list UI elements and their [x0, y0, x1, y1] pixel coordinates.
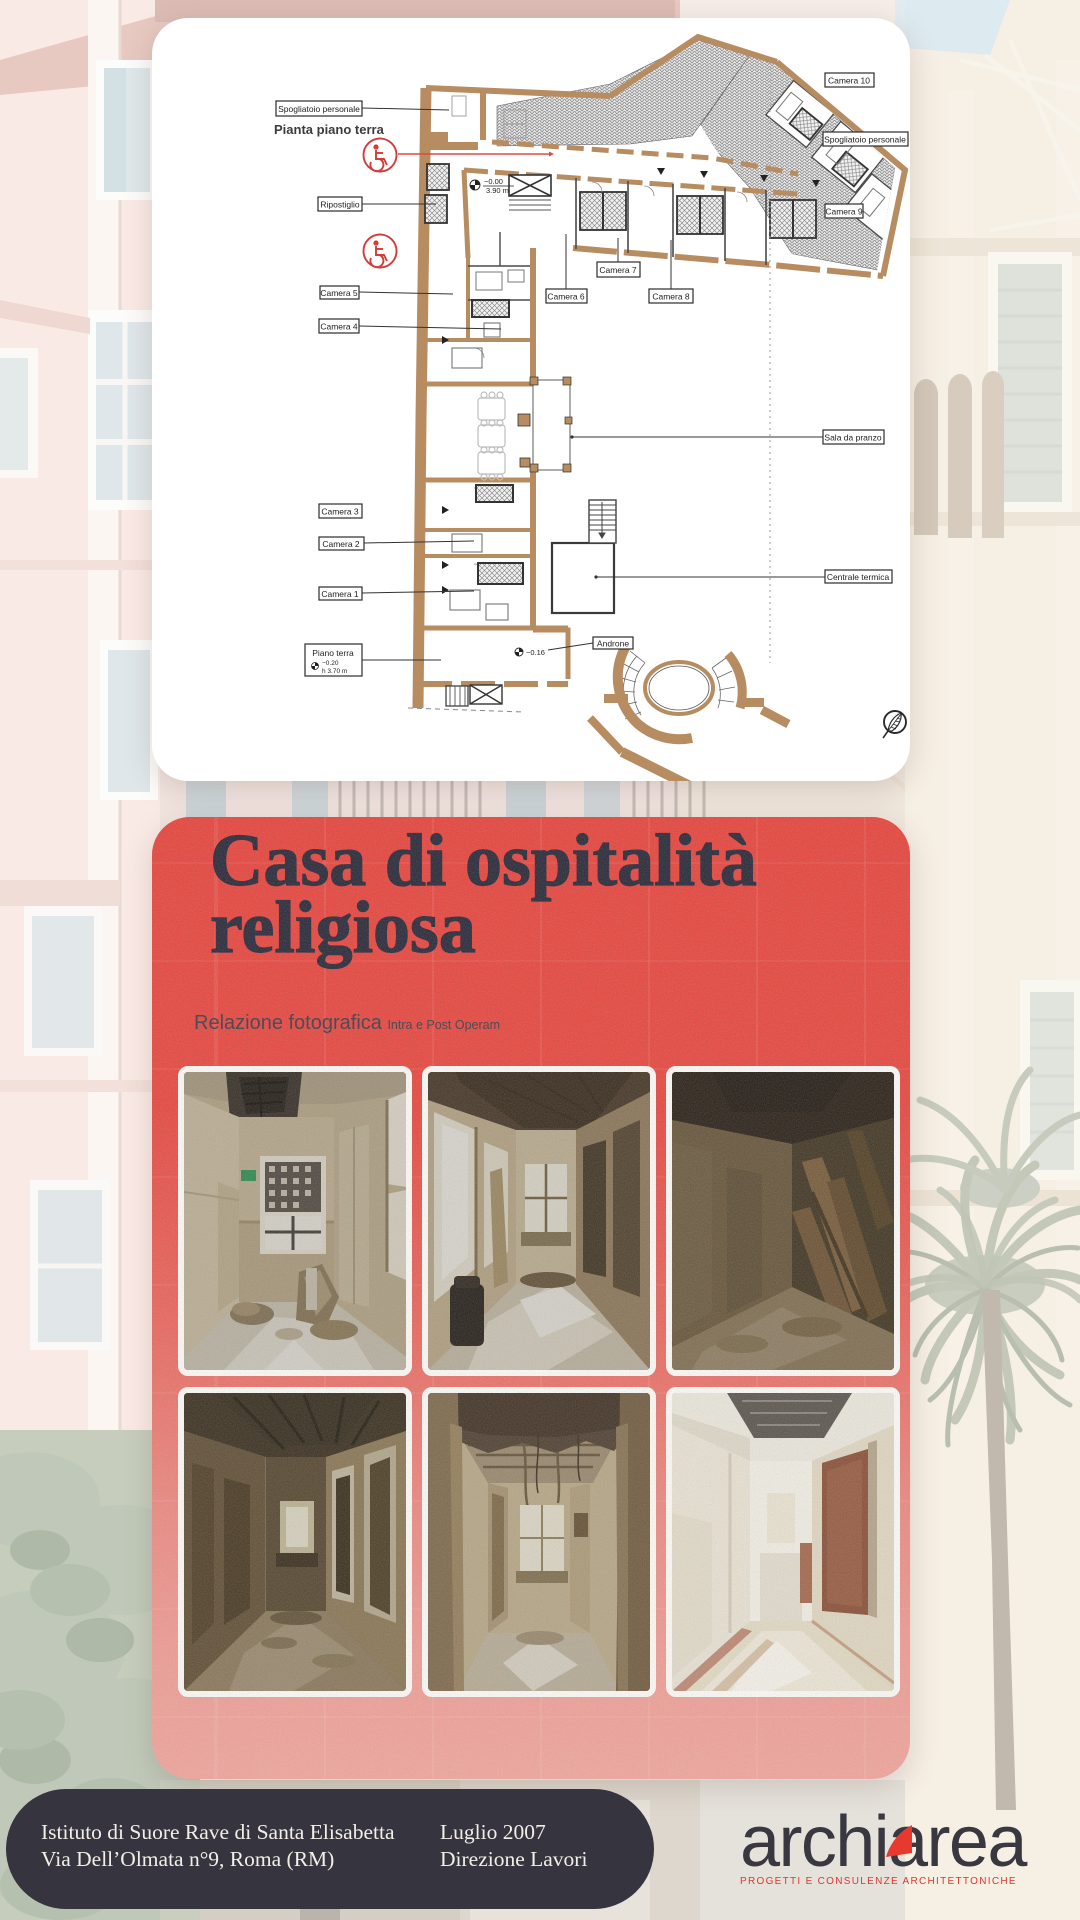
svg-text:Sala da pranzo: Sala da pranzo [824, 433, 881, 443]
svg-text:Camera 1: Camera 1 [321, 589, 359, 599]
svg-text:Piano terra: Piano terra [312, 648, 354, 658]
svg-text:Camera 9: Camera 9 [825, 207, 863, 217]
svg-text:−0.16: −0.16 [526, 648, 545, 657]
svg-text:Centrale termica: Centrale termica [827, 572, 890, 582]
svg-text:h 3.70 m: h 3.70 m [322, 668, 347, 675]
svg-text:Camera 8: Camera 8 [652, 292, 690, 302]
svg-text:Camera 4: Camera 4 [320, 322, 358, 332]
svg-text:Ripostiglio: Ripostiglio [320, 200, 359, 210]
svg-text:−0.20: −0.20 [322, 660, 339, 667]
svg-text:Androne: Androne [597, 639, 629, 649]
svg-text:Camera 5: Camera 5 [320, 288, 358, 298]
svg-text:3.90 m: 3.90 m [486, 186, 509, 195]
svg-text:Pianta piano terra: Pianta piano terra [274, 122, 385, 137]
svg-text:Camera 3: Camera 3 [321, 507, 359, 517]
svg-text:Camera 2: Camera 2 [322, 539, 360, 549]
svg-text:−0.00: −0.00 [484, 177, 503, 186]
svg-text:Camera 7: Camera 7 [599, 265, 637, 275]
svg-text:Camera 10: Camera 10 [828, 76, 870, 86]
svg-text:Spogliatoio personale: Spogliatoio personale [824, 135, 906, 145]
svg-text:Camera 6: Camera 6 [547, 292, 585, 302]
svg-text:Spogliatoio personale: Spogliatoio personale [278, 104, 360, 114]
